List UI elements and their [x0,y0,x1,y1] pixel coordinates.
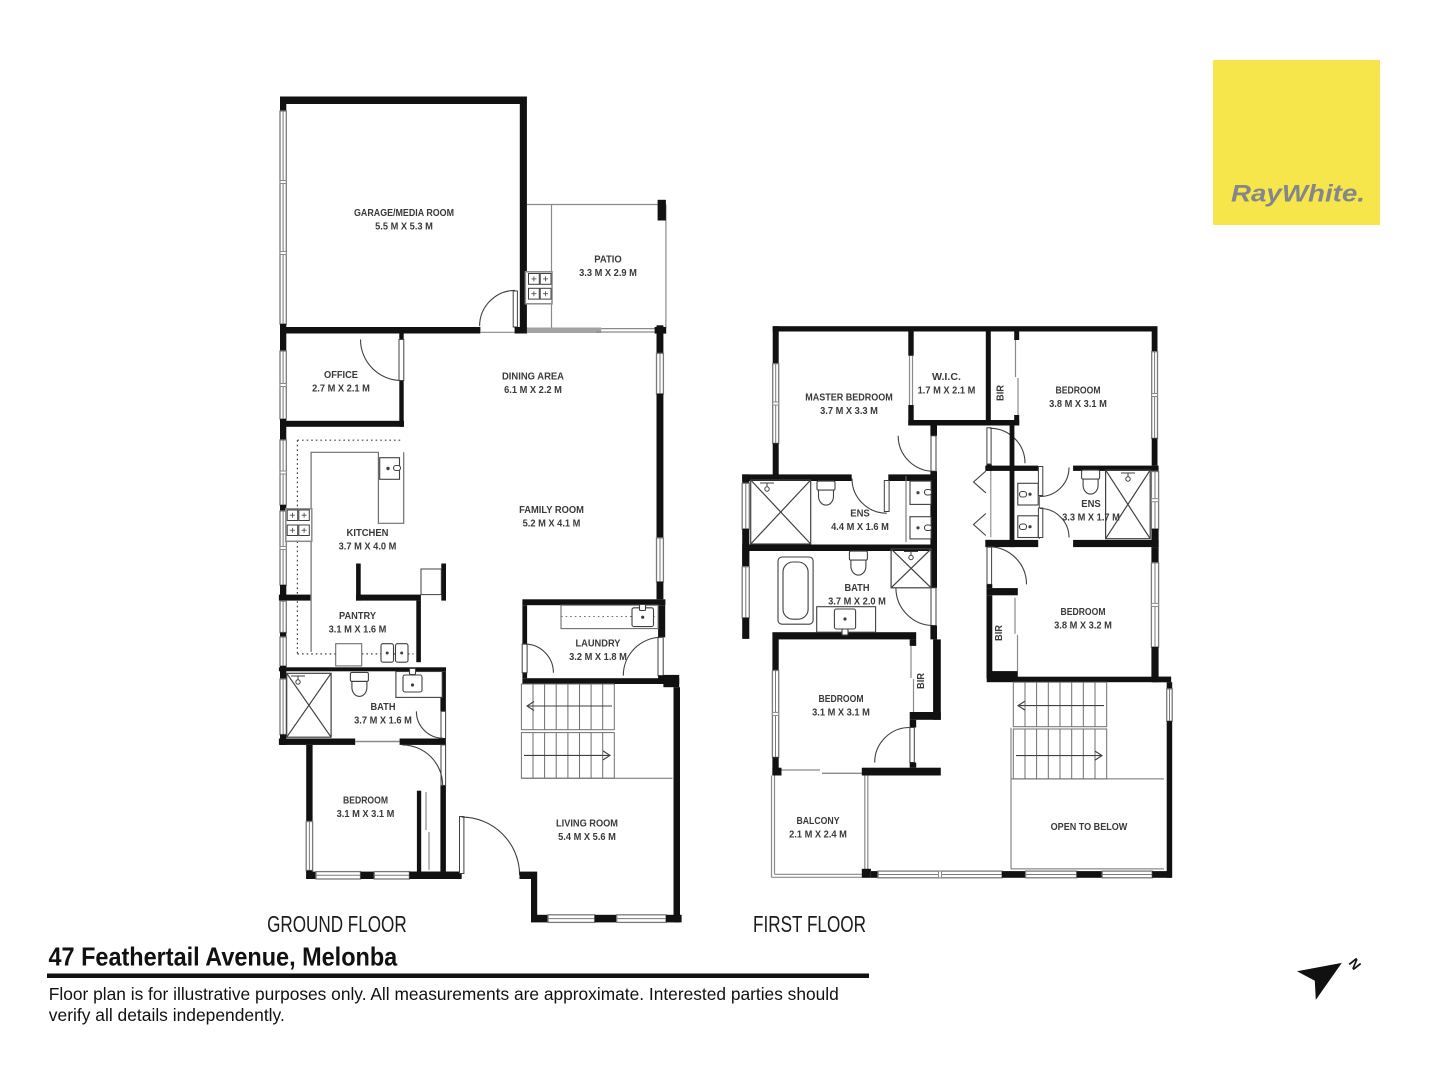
svg-text:KITCHEN: KITCHEN [347,528,389,539]
svg-text:RayWhite.: RayWhite. [1231,181,1365,208]
svg-text:3.1 M X 1.6 M: 3.1 M X 1.6 M [329,625,387,636]
svg-text:PATIO: PATIO [594,255,622,266]
svg-text:3.1 M X 3.1 M: 3.1 M X 3.1 M [812,708,870,719]
svg-text:3.3 M X 1.7 M: 3.3 M X 1.7 M [1062,513,1120,524]
svg-text:4.4 M X 1.6 M: 4.4 M X 1.6 M [831,522,889,533]
svg-text:3.7 M X 1.6 M: 3.7 M X 1.6 M [354,716,412,727]
svg-text:LAUNDRY: LAUNDRY [576,639,621,650]
svg-text:3.8 M X 3.2 M: 3.8 M X 3.2 M [1054,621,1112,632]
svg-text:GROUND FLOOR: GROUND FLOOR [267,911,407,937]
svg-text:DINING AREA: DINING AREA [502,372,564,383]
svg-text:3.2 M X 1.8 M: 3.2 M X 1.8 M [569,652,627,663]
svg-text:OPEN TO BELOW: OPEN TO BELOW [1051,822,1128,833]
svg-text:LIVING ROOM: LIVING ROOM [556,819,618,830]
svg-text:3.1 M X 3.1 M: 3.1 M X 3.1 M [337,809,395,820]
svg-text:BIR: BIR [916,673,927,689]
svg-text:3.8 M X 3.1 M: 3.8 M X 3.1 M [1049,399,1107,410]
svg-text:1.7 M X 2.1 M: 1.7 M X 2.1 M [918,386,976,397]
svg-text:MASTER BEDROOM: MASTER BEDROOM [805,393,893,404]
svg-text:BEDROOM: BEDROOM [1061,607,1106,618]
svg-text:5.4 M X 5.6 M: 5.4 M X 5.6 M [558,832,616,843]
svg-text:ENS: ENS [1081,499,1101,510]
svg-text:PANTRY: PANTRY [339,611,376,622]
svg-text:3.7 M X 2.0 M: 3.7 M X 2.0 M [828,597,886,608]
svg-text:3.7 M X 3.3 M: 3.7 M X 3.3 M [820,406,878,417]
svg-text:ENS: ENS [850,509,870,520]
svg-text:FIRST FLOOR: FIRST FLOOR [753,911,866,937]
svg-text:3.7 M X 4.0 M: 3.7 M X 4.0 M [339,542,397,553]
svg-text:BATH: BATH [845,583,870,594]
svg-text:6.1 M X 2.2 M: 6.1 M X 2.2 M [504,385,562,396]
svg-text:5.5 M X 5.3 M: 5.5 M X 5.3 M [375,222,433,233]
svg-text:OFFICE: OFFICE [324,370,358,381]
svg-text:BEDROOM: BEDROOM [1056,386,1101,397]
svg-text:BIR: BIR [994,625,1005,641]
svg-text:BATH: BATH [371,702,396,713]
svg-text:BEDROOM: BEDROOM [819,694,864,705]
svg-text:Floor plan is for illustrative: Floor plan is for illustrative purposes … [49,984,839,1004]
svg-text:FAMILY ROOM: FAMILY ROOM [519,505,584,516]
svg-text:47 Feathertail Avenue, Melonba: 47 Feathertail Avenue, Melonba [49,942,398,972]
svg-text:BALCONY: BALCONY [797,816,840,827]
svg-text:verify all details independent: verify all details independently. [49,1005,285,1025]
svg-text:BEDROOM: BEDROOM [343,796,388,807]
svg-text:BIR: BIR [996,385,1007,401]
svg-text:5.2 M X 4.1 M: 5.2 M X 4.1 M [523,519,581,530]
svg-text:2.1 M X 2.4 M: 2.1 M X 2.4 M [789,830,847,841]
svg-text:3.3 M X 2.9 M: 3.3 M X 2.9 M [579,268,637,279]
svg-text:GARAGE/MEDIA ROOM: GARAGE/MEDIA ROOM [354,208,454,219]
svg-text:W.I.C.: W.I.C. [932,372,961,383]
svg-text:2.7 M X 2.1 M: 2.7 M X 2.1 M [312,384,370,395]
